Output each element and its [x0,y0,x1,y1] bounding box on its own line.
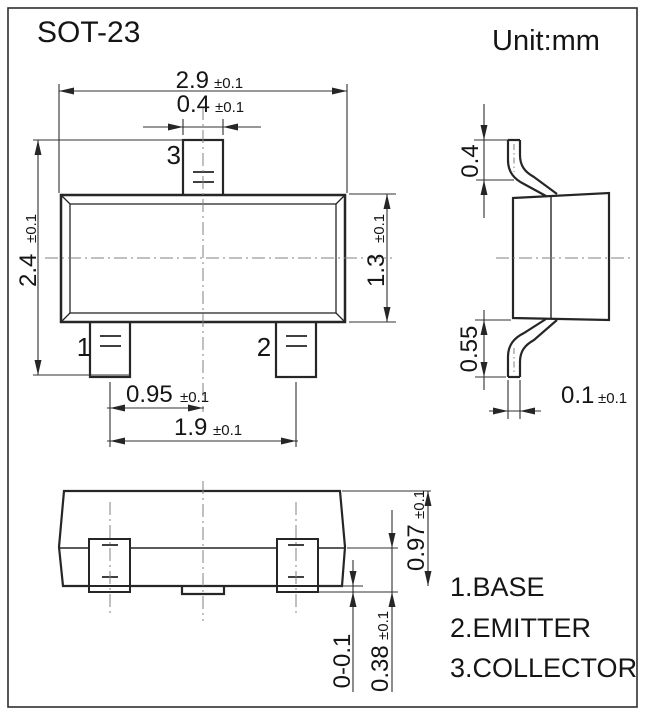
arrowhead [350,592,357,607]
dim-foot-length-tol: ±0.1 [375,611,392,640]
legend-pin1: 1.BASE [450,572,545,602]
arrowhead [520,408,535,415]
bottom-lead-inner-edge [520,320,557,377]
dim-lead-top-height-value: 0.4 [457,144,484,177]
arrowhead [425,571,432,586]
arrowhead [35,360,42,375]
dim-tab-width: 0.4 ±0.1 [143,91,261,135]
dim-lead-thickness: 0.1 ±0.1 [489,380,627,419]
dim-body-width-tol: ±0.1 [214,75,243,92]
arrowhead [389,533,396,548]
dim-profile-height-tol: ±0.1 [411,490,428,519]
dim-standoff-value: 0-0.1 [329,634,356,689]
arrowhead [281,438,296,445]
pin3-number: 3 [167,140,181,170]
arrowhead [384,194,391,209]
dim-pin-pitch-value: 0.95 [126,381,173,408]
dim-lead-thickness-tol: ±0.1 [598,390,627,407]
dim-lead-top-height: 0.4 [457,104,514,218]
drawing-canvas: SOT-23 Unit:mm 3 1 2 2.9 ±0.1 0.4 ±0.1 [0,0,645,715]
arrowhead [481,180,488,195]
pin1-number: 1 [77,332,91,362]
arrowhead [332,88,347,95]
arrowhead [110,405,125,412]
dim-lead-thickness-value: 0.1 [561,382,594,409]
dim-overall-height-value: 2.4 [15,254,42,287]
dim-pin-pitch-tol: ±0.1 [180,389,209,406]
profile-pin2-foot [277,586,318,592]
arrowhead [493,408,508,415]
dim-body-width-value: 2.9 [176,67,209,94]
dim-tab-width-tol: ±0.1 [215,99,244,116]
arrowhead [59,88,74,95]
arrowhead [384,307,391,322]
arrowhead [481,125,488,140]
front-view: 3 1 2 [45,107,392,412]
page-title: SOT-23 [37,16,140,49]
arrowhead [110,438,125,445]
profile-pin2-lead [277,539,318,586]
datasheet-package-drawing: SOT-23 Unit:mm 3 1 2 2.9 ±0.1 0.4 ±0.1 [0,0,645,715]
dim-lead-bottom-height-value: 0.55 [456,326,483,373]
pin-legend: 1.BASE 2.EMITTER 3.COLLECTOR [450,572,637,683]
legend-pin2: 2.EMITTER [450,613,591,643]
dim-lead-bottom-height: 0.55 [456,310,511,390]
pin2-number: 2 [257,332,271,362]
pin2-lead [276,320,316,377]
side-view [496,140,630,377]
dim-pin-span-tol: ±0.1 [213,422,242,439]
dim-foot-length-value: 0.38 [367,645,394,692]
legend-pin3: 3.COLLECTOR [450,653,637,683]
arrowhead [350,571,357,586]
arrowhead [223,124,238,131]
unit-label: Unit:mm [492,25,600,57]
dim-lines [143,119,261,135]
dim-body-height-value: 1.3 [363,254,390,287]
arrowhead [35,140,42,155]
arrowhead [168,124,183,131]
dim-body-height-tol: ±0.1 [371,214,388,243]
arrowhead [389,592,396,607]
pin1-lead [90,320,130,377]
dim-tab-width-value: 0.4 [177,91,210,118]
dim-pin-span-value: 1.9 [174,414,207,441]
profile-view [59,481,345,621]
dim-profile-height-value: 0.97 [403,524,430,571]
dim-overall-height-tol: ±0.1 [23,214,40,243]
side-body [513,193,609,320]
